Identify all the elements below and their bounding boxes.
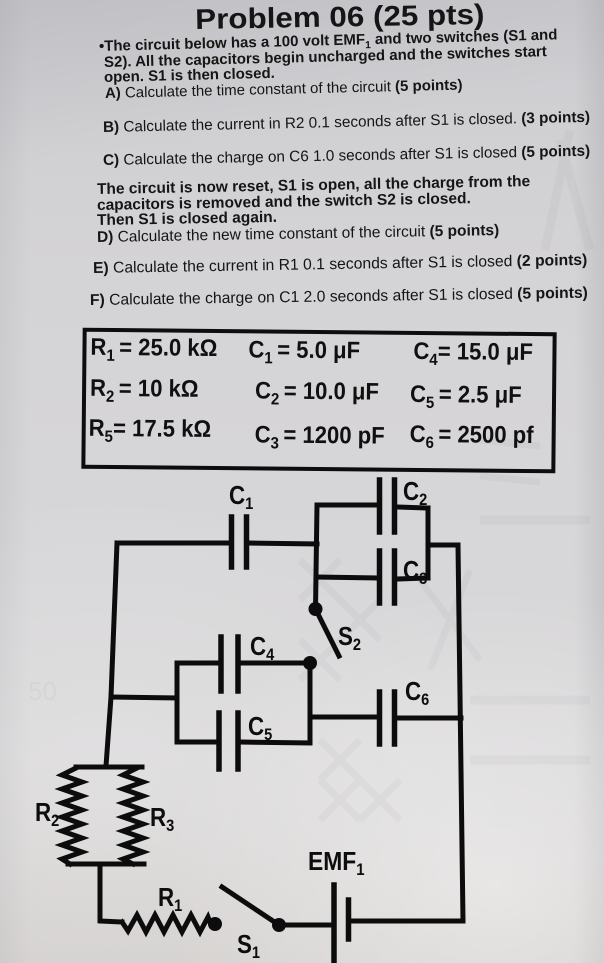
svg-text:C4: C4 [250,632,274,664]
svg-text:S1: S1 [237,930,260,962]
svg-text:R3: R3 [150,803,174,835]
svg-text:C6: C6 [405,677,429,709]
svg-text:C1: C1 [229,481,253,513]
svg-text:R1: R1 [158,883,182,915]
svg-text:S2: S2 [338,622,361,654]
svg-text:C5: C5 [248,712,272,744]
svg-text:EMF1: EMF1 [308,848,365,880]
svg-text:C3: C3 [403,556,427,588]
svg-text:C2: C2 [403,477,427,509]
